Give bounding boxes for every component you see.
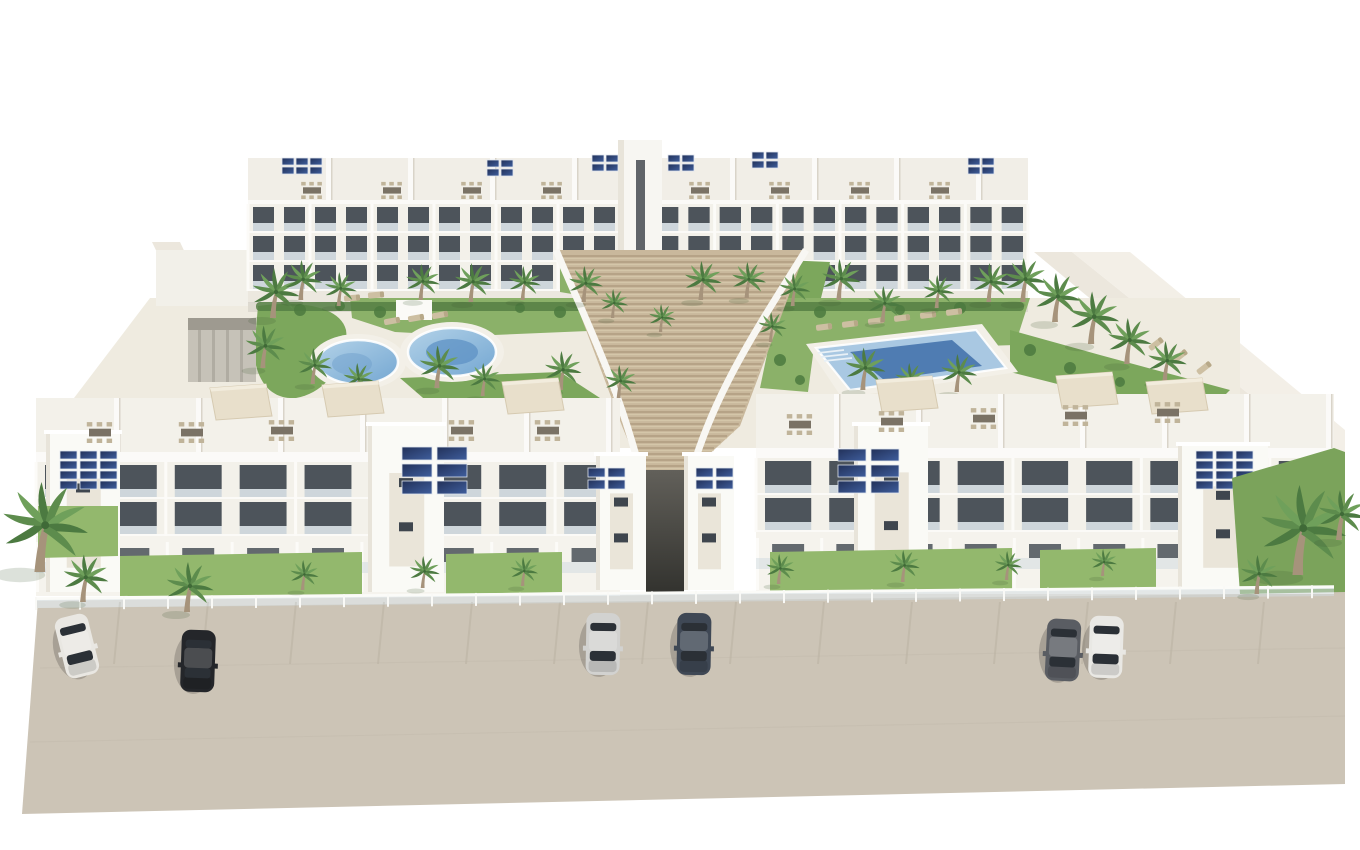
- solar-panel: [1196, 451, 1213, 459]
- terrace-dining-set: [449, 420, 474, 441]
- glass-railing: [470, 223, 491, 231]
- balcony-opening: [765, 461, 811, 485]
- fence-post: [255, 595, 257, 608]
- tower-window: [614, 533, 628, 542]
- solar-panel: [487, 160, 499, 167]
- glass-railing: [720, 223, 741, 231]
- solar-panel: [752, 161, 764, 168]
- balcony-opening: [240, 465, 287, 489]
- glass-railing: [305, 526, 352, 535]
- solar-panel: [592, 155, 604, 162]
- palm-shadow: [1104, 363, 1130, 370]
- solar-panel: [80, 471, 97, 479]
- fence-post: [563, 592, 565, 605]
- solar-panel: [100, 471, 117, 479]
- fence-post: [1179, 586, 1181, 599]
- balcony-opening: [782, 207, 803, 223]
- solar-panel: [1236, 451, 1253, 459]
- solar-panel: [310, 158, 322, 165]
- solar-panel: [968, 167, 980, 174]
- balcony-opening: [939, 265, 960, 281]
- palm-shadow: [248, 317, 276, 325]
- rooftop-dining-set: [689, 182, 710, 199]
- fence-post: [35, 597, 37, 610]
- solar-panel: [606, 164, 618, 171]
- glass-railing: [908, 252, 929, 260]
- rooftop-dining-set: [381, 182, 402, 199]
- solar-panel: [60, 481, 77, 489]
- glass-railing: [175, 489, 222, 498]
- glass-railing: [765, 485, 811, 494]
- glass-railing: [845, 252, 866, 260]
- terrace-dining-set: [179, 422, 204, 443]
- solar-panel: [608, 468, 625, 477]
- rear-left-wing: [156, 250, 248, 306]
- balcony-opening: [970, 236, 991, 252]
- palm-shadow: [566, 302, 586, 308]
- tower-window: [399, 522, 413, 531]
- balcony-opening: [563, 236, 584, 252]
- fence-post: [431, 593, 433, 606]
- glass-railing: [346, 223, 367, 231]
- glass-railing: [284, 252, 305, 260]
- solar-panel: [838, 465, 866, 477]
- glass-railing: [377, 223, 398, 231]
- fence-post: [1223, 586, 1225, 599]
- roof-edge: [248, 200, 620, 204]
- balcony-opening: [1022, 498, 1068, 522]
- glass-railing: [346, 252, 367, 260]
- rear-window: [681, 623, 707, 631]
- fence-post: [739, 590, 741, 603]
- rear-window: [590, 623, 616, 631]
- fence-post: [827, 590, 829, 603]
- balcony-opening: [315, 207, 336, 223]
- solar-panel: [1196, 471, 1213, 479]
- fence-post: [1003, 588, 1005, 601]
- balcony-opening: [499, 465, 546, 489]
- pergola-canopy: [322, 381, 384, 417]
- glass-railing: [765, 522, 811, 531]
- balcony-opening: [782, 236, 803, 252]
- terrace-dining-set: [1063, 405, 1088, 426]
- solar-panel: [296, 158, 308, 165]
- facade-front-left: [35, 462, 621, 536]
- solar-panel: [871, 465, 899, 477]
- windshield: [184, 668, 210, 679]
- solar-panel: [668, 155, 680, 162]
- glass-railing: [814, 252, 835, 260]
- solar-panel: [437, 447, 467, 460]
- balcony-opening: [814, 207, 835, 223]
- fence-post: [123, 596, 125, 609]
- glass-railing: [1002, 223, 1023, 231]
- balcony-opening: [908, 207, 929, 223]
- fence-post: [1047, 588, 1049, 601]
- glass-railing: [958, 522, 1004, 531]
- solar-panel: [608, 480, 625, 489]
- glass-railing: [284, 223, 305, 231]
- balcony-opening: [253, 236, 274, 252]
- solar-panel: [1196, 481, 1213, 489]
- balcony-opening: [377, 265, 398, 281]
- balcony-opening: [284, 236, 305, 252]
- palm-shadow: [1237, 594, 1259, 600]
- balcony-opening: [346, 265, 367, 281]
- palm-shadow: [818, 300, 841, 307]
- solar-panel: [1216, 471, 1233, 479]
- glass-railing: [958, 485, 1004, 494]
- solar-panel: [402, 447, 432, 460]
- glass-railing: [499, 526, 546, 535]
- solar-panel: [310, 167, 322, 174]
- solar-panel: [1216, 481, 1233, 489]
- central-tower-glazing: [636, 160, 645, 252]
- solar-panel: [588, 480, 605, 489]
- fence-post: [915, 589, 917, 602]
- balcony-opening: [765, 498, 811, 522]
- balcony-opening: [1002, 236, 1023, 252]
- glass-railing: [939, 223, 960, 231]
- terrace-dining-set: [971, 408, 996, 429]
- palm-shadow: [451, 302, 473, 308]
- solar-panel: [838, 449, 866, 461]
- solar-panel: [871, 481, 899, 493]
- solar-panel: [60, 461, 77, 469]
- fence-post: [783, 590, 785, 603]
- glass-railing: [876, 252, 897, 260]
- solar-panel: [1216, 461, 1233, 469]
- solar-panel: [606, 155, 618, 162]
- balcony-opening: [305, 502, 352, 526]
- solar-panel: [682, 155, 694, 162]
- glass-railing: [1002, 252, 1023, 260]
- solar-panel: [752, 152, 764, 159]
- solar-panel: [982, 158, 994, 165]
- balcony-opening: [958, 461, 1004, 485]
- palm-shadow: [969, 302, 991, 308]
- glass-railing: [253, 252, 274, 260]
- rear-window: [185, 640, 211, 649]
- balcony-opening: [315, 236, 336, 252]
- fence-post: [651, 591, 653, 604]
- palm-shadow: [992, 581, 1008, 586]
- palm-shadow: [865, 322, 885, 328]
- pergola-canopy: [502, 378, 564, 414]
- palm-shadow: [288, 591, 305, 596]
- balcony-opening: [532, 236, 553, 252]
- glass-railing: [408, 252, 429, 260]
- fence-post: [871, 589, 873, 602]
- tower-window: [702, 498, 716, 507]
- render-frame: [0, 0, 1360, 850]
- glass-railing: [175, 526, 222, 535]
- solar-panel: [982, 167, 994, 174]
- balcony-opening: [876, 207, 897, 223]
- fence-post: [1091, 587, 1093, 600]
- terrace-dining-set: [1155, 402, 1180, 423]
- rooftop-dining-set: [769, 182, 790, 199]
- fence-post: [1135, 587, 1137, 600]
- fence-post: [519, 593, 521, 606]
- solar-panel: [80, 461, 97, 469]
- balcony-opening: [439, 236, 460, 252]
- solar-panel: [437, 464, 467, 477]
- glass-railing: [688, 223, 709, 231]
- palm-shadow: [403, 300, 423, 306]
- tower-window: [702, 533, 716, 542]
- balcony-opening: [408, 236, 429, 252]
- solar-panel: [592, 164, 604, 171]
- glass-railing: [377, 252, 398, 260]
- solar-panel: [588, 468, 605, 477]
- balcony-opening: [908, 236, 929, 252]
- balcony-opening: [439, 207, 460, 223]
- fence-post: [387, 594, 389, 607]
- palm-shadow: [508, 587, 524, 592]
- entrance-passage: [646, 470, 684, 592]
- balcony-opening: [346, 236, 367, 252]
- windshield: [1092, 654, 1118, 665]
- lawn: [120, 552, 362, 596]
- windshield: [681, 651, 707, 661]
- palm-shadow: [920, 308, 938, 313]
- palm-shadow: [1001, 301, 1026, 308]
- glass-railing: [315, 252, 336, 260]
- glass-railing: [532, 281, 553, 289]
- glass-railing: [782, 223, 803, 231]
- windshield: [590, 651, 616, 661]
- rooftop-dining-set: [849, 182, 870, 199]
- pergola-canopy: [1146, 378, 1208, 414]
- balcony-opening: [845, 236, 866, 252]
- solar-panel: [696, 480, 713, 489]
- balcony-opening: [876, 236, 897, 252]
- balcony-opening: [377, 236, 398, 252]
- pergola-canopy: [210, 384, 272, 420]
- palm-shadow: [162, 611, 190, 619]
- balcony-opening: [408, 207, 429, 223]
- glass-railing: [1022, 485, 1068, 494]
- glass-railing: [1086, 522, 1132, 531]
- fence-post: [1267, 586, 1269, 599]
- balcony-opening: [253, 207, 274, 223]
- balcony-opening: [377, 207, 398, 223]
- lawn: [446, 552, 562, 594]
- fence-post: [607, 592, 609, 605]
- palm-shadow: [281, 300, 303, 306]
- balcony-opening: [1022, 461, 1068, 485]
- balcony-opening: [1086, 461, 1132, 485]
- solar-panel: [402, 464, 432, 477]
- balcony-opening: [720, 207, 741, 223]
- glass-railing: [377, 281, 398, 289]
- balcony-opening: [346, 207, 367, 223]
- rooftop-dining-set: [461, 182, 482, 199]
- fence-post: [959, 588, 961, 601]
- glass-railing: [499, 489, 546, 498]
- glass-railing: [876, 281, 897, 289]
- palm-shadow: [764, 585, 781, 590]
- glass-railing: [563, 223, 584, 231]
- solar-panel: [402, 481, 432, 494]
- roof-edge: [652, 200, 1028, 204]
- balcony-opening: [240, 502, 287, 526]
- palm-shadow: [1065, 343, 1094, 351]
- palm-shadow: [59, 601, 86, 609]
- glass-railing: [908, 223, 929, 231]
- pergola-canopy: [876, 376, 938, 412]
- palm-shadow: [647, 333, 663, 337]
- balcony-opening: [499, 502, 546, 526]
- fence-post: [211, 595, 213, 608]
- balcony-opening: [939, 207, 960, 223]
- solar-panel: [968, 158, 980, 165]
- glass-railing: [532, 252, 553, 260]
- glass-railing: [751, 223, 772, 231]
- solar-panel: [437, 481, 467, 494]
- rear-window: [1093, 626, 1119, 635]
- palm-shadow: [1089, 577, 1104, 581]
- palm-shadow: [729, 298, 749, 304]
- palm-shadow: [407, 588, 425, 593]
- palm-shadow: [322, 306, 341, 311]
- palm-shadow: [416, 388, 440, 395]
- terrace-dining-set: [535, 420, 560, 441]
- roof-band: [36, 452, 620, 462]
- solar-panel: [100, 451, 117, 459]
- solar-panel: [1236, 461, 1253, 469]
- glass-railing: [240, 489, 287, 498]
- glass-railing: [439, 223, 460, 231]
- balcony-opening: [1086, 498, 1132, 522]
- balcony-opening: [814, 236, 835, 252]
- balcony-opening: [939, 236, 960, 252]
- rear-window: [1051, 628, 1077, 637]
- glass-railing: [305, 489, 352, 498]
- glass-railing: [315, 223, 336, 231]
- balcony-opening: [688, 236, 709, 252]
- palm-shadow: [598, 319, 614, 324]
- balcony-opening: [1002, 207, 1023, 223]
- balcony-opening: [175, 465, 222, 489]
- glass-railing: [1086, 485, 1132, 494]
- balcony-opening: [501, 207, 522, 223]
- solar-panel: [871, 449, 899, 461]
- glass-railing: [439, 281, 460, 289]
- windshield: [1049, 656, 1075, 667]
- glass-railing: [501, 223, 522, 231]
- rooftop-dining-set: [929, 182, 950, 199]
- balcony-opening: [470, 236, 491, 252]
- solar-panel: [716, 480, 733, 489]
- fence-post: [167, 596, 169, 609]
- glass-railing: [1022, 522, 1068, 531]
- balcony-opening: [594, 207, 615, 223]
- pergola-canopy: [1056, 372, 1118, 408]
- balcony-opening: [720, 236, 741, 252]
- solar-panel: [100, 481, 117, 489]
- balcony-opening: [688, 207, 709, 223]
- balcony-opening: [563, 207, 584, 223]
- balcony-opening: [305, 465, 352, 489]
- rooftop-dining-set: [541, 182, 562, 199]
- glass-railing: [501, 252, 522, 260]
- glass-railing: [594, 223, 615, 231]
- palm-shadow: [887, 582, 905, 587]
- balcony-opening: [958, 498, 1004, 522]
- balcony-opening: [970, 207, 991, 223]
- solar-panel: [668, 164, 680, 171]
- palm-shadow: [776, 306, 794, 311]
- fence-post: [1311, 585, 1313, 598]
- palm-shadow: [506, 300, 525, 305]
- solar-panel: [766, 161, 778, 168]
- solar-panel: [696, 468, 713, 477]
- tower-window: [1216, 529, 1230, 538]
- balcony-opening: [532, 207, 553, 223]
- solar-panel: [501, 169, 513, 176]
- glass-railing: [408, 223, 429, 231]
- tower-window: [614, 498, 628, 507]
- palm-shadow: [681, 300, 703, 306]
- solar-panel: [682, 164, 694, 171]
- glass-railing: [532, 223, 553, 231]
- glass-railing: [845, 223, 866, 231]
- balcony-opening: [175, 502, 222, 526]
- balcony-opening: [751, 236, 772, 252]
- balcony-opening: [470, 207, 491, 223]
- solar-panel: [60, 471, 77, 479]
- terrace-dining-set: [787, 414, 812, 435]
- balcony-opening: [284, 207, 305, 223]
- balcony-opening: [751, 207, 772, 223]
- palm-shadow: [1314, 539, 1342, 547]
- solar-panel: [296, 167, 308, 174]
- glass-railing: [970, 252, 991, 260]
- glass-railing: [439, 252, 460, 260]
- balcony-opening: [594, 236, 615, 252]
- palm-shadow: [242, 368, 266, 375]
- solar-panel: [716, 468, 733, 477]
- apartment-complex-render: [0, 0, 1360, 850]
- glass-railing: [470, 252, 491, 260]
- palm-shadow: [295, 384, 315, 390]
- rooftop-dining-set: [301, 182, 322, 199]
- terrace-dining-set: [269, 420, 294, 441]
- solar-panel: [60, 451, 77, 459]
- glass-railing: [240, 526, 287, 535]
- glass-railing: [876, 223, 897, 231]
- fence-post: [695, 591, 697, 604]
- balcony-opening: [876, 265, 897, 281]
- tower-window: [1216, 491, 1230, 500]
- tower-window: [884, 521, 898, 530]
- balcony-opening: [501, 236, 522, 252]
- solar-panel: [282, 167, 294, 174]
- balcony-opening: [908, 265, 929, 281]
- solar-panel: [487, 169, 499, 176]
- solar-panel: [80, 481, 97, 489]
- fence-post: [299, 595, 301, 608]
- palm-shadow: [756, 343, 773, 348]
- terrace-dining-set: [87, 422, 112, 443]
- palm-shadow: [1030, 321, 1057, 329]
- solar-panel: [501, 160, 513, 167]
- solar-panel: [282, 158, 294, 165]
- glass-railing: [970, 223, 991, 231]
- solar-panel: [100, 461, 117, 469]
